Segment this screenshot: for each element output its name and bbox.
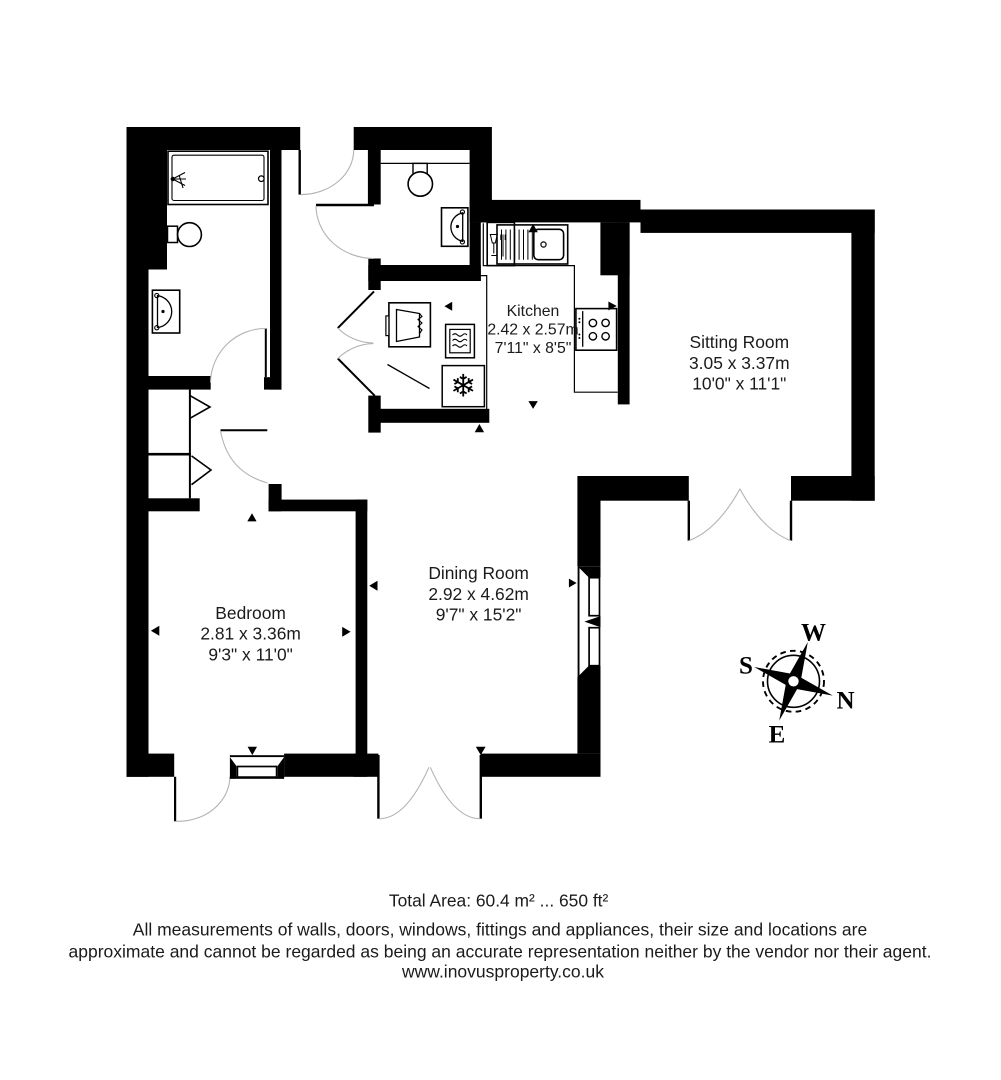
svg-text:2.42 x 2.57m: 2.42 x 2.57m [487, 322, 578, 339]
svg-text:Kitchen: Kitchen [507, 303, 560, 320]
svg-text:All measurements of walls, doo: All measurements of walls, doors, window… [133, 920, 867, 940]
svg-text:9'7" x 15'2": 9'7" x 15'2" [436, 605, 522, 625]
svg-text:Dining Room: Dining Room [428, 563, 529, 583]
svg-text:❄: ❄ [450, 369, 476, 404]
svg-text:Bedroom: Bedroom [215, 603, 286, 623]
svg-text:2.81 x 3.36m: 2.81 x 3.36m [200, 624, 301, 644]
svg-text:10'0" x 11'1": 10'0" x 11'1" [692, 374, 786, 394]
svg-text:Sitting Room: Sitting Room [690, 332, 790, 352]
svg-text:N: N [836, 688, 854, 715]
svg-text:approximate and cannot be rega: approximate and cannot be regarded as be… [69, 941, 932, 961]
svg-text:Total Area: 60.4 m² ... 650 ft: Total Area: 60.4 m² ... 650 ft² [389, 890, 609, 910]
svg-text:S: S [739, 653, 753, 680]
svg-text:W: W [801, 620, 826, 647]
svg-text:E: E [769, 722, 786, 749]
svg-text:7'11" x 8'5": 7'11" x 8'5" [495, 340, 572, 357]
svg-text:3.05 x 3.37m: 3.05 x 3.37m [689, 353, 790, 373]
svg-text:2.92 x 4.62m: 2.92 x 4.62m [428, 584, 529, 604]
svg-text:9'3" x 11'0": 9'3" x 11'0" [208, 645, 292, 665]
svg-text:www.inovusproperty.co.uk: www.inovusproperty.co.uk [401, 962, 604, 982]
